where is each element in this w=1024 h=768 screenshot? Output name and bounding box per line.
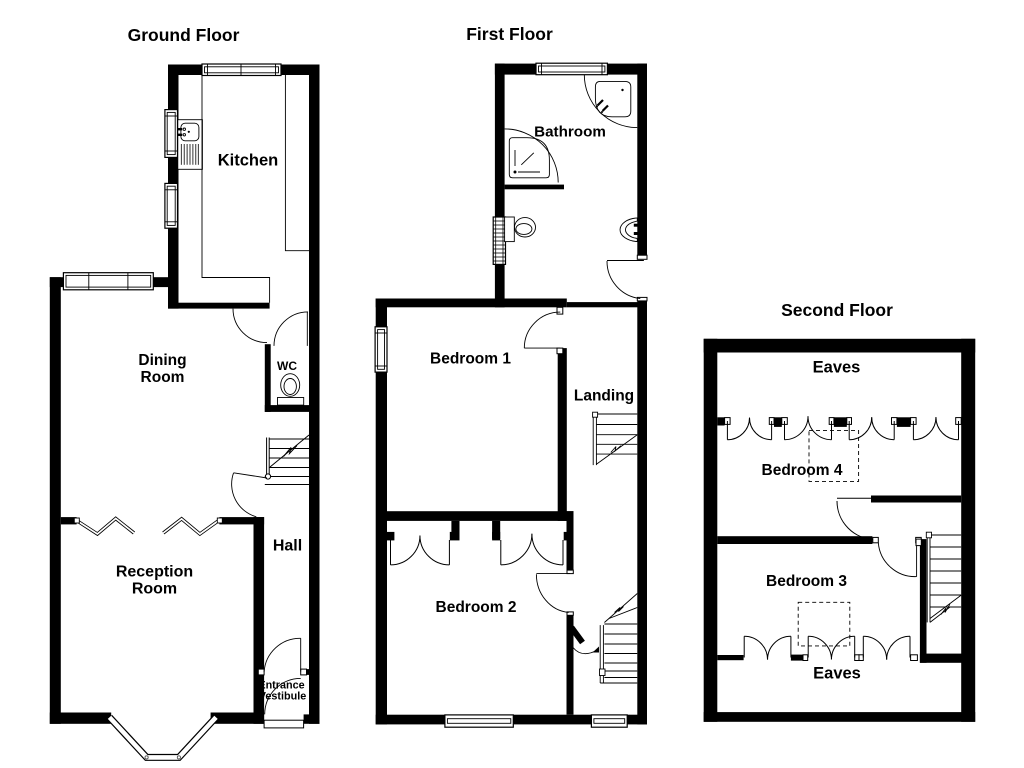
svg-text:Bedroom 1: Bedroom 1 — [430, 351, 511, 368]
svg-text:Eaves: Eaves — [813, 665, 861, 683]
svg-text:Room: Room — [132, 581, 177, 598]
svg-text:Bedroom 2: Bedroom 2 — [436, 599, 517, 616]
svg-text:Ground Floor: Ground Floor — [128, 25, 240, 45]
svg-text:Second Floor: Second Floor — [781, 300, 893, 320]
svg-text:Eaves: Eaves — [813, 359, 861, 377]
svg-text:Bedroom 3: Bedroom 3 — [766, 573, 847, 590]
svg-text:Landing: Landing — [574, 388, 634, 405]
svg-text:Hall: Hall — [273, 538, 302, 555]
svg-text:First Floor: First Floor — [466, 24, 553, 44]
svg-text:Room: Room — [141, 369, 185, 386]
svg-text:Kitchen: Kitchen — [218, 152, 279, 170]
svg-text:Bathroom: Bathroom — [534, 124, 606, 141]
svg-text:Bedroom 4: Bedroom 4 — [762, 462, 843, 479]
svg-text:Reception: Reception — [116, 564, 193, 581]
svg-text:WC: WC — [277, 359, 297, 373]
svg-text:Dining: Dining — [138, 352, 186, 369]
svg-text:Vestibule: Vestibule — [259, 691, 306, 703]
